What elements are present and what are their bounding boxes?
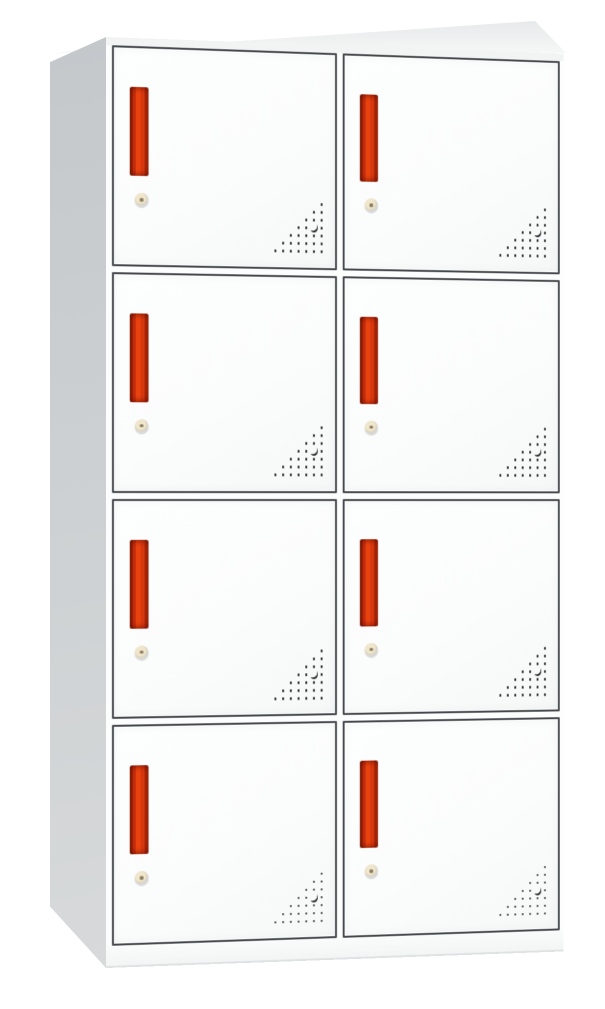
vent-hole (521, 451, 524, 454)
vent-holes (497, 644, 549, 699)
vent-hole (507, 254, 510, 257)
vent-holes (497, 205, 549, 260)
vent-hole (320, 657, 323, 660)
vent-hole (297, 689, 300, 692)
vent-hole (297, 681, 300, 684)
vent-hole (297, 920, 300, 923)
vent-hole (536, 466, 539, 469)
vent-hole (544, 904, 547, 907)
vent-hole (313, 681, 316, 684)
vent-hole (536, 897, 539, 900)
vent-hole (282, 689, 285, 692)
vent-hole-large (310, 224, 318, 233)
vent-hole (297, 458, 300, 461)
keyhole-lock-icon (365, 642, 378, 656)
vent-hole (544, 873, 547, 876)
vent-hole (521, 255, 524, 258)
vent-hole (282, 697, 285, 700)
locker-door-r1-c2 (343, 53, 560, 274)
vent-hole (529, 255, 532, 258)
vent-hole (313, 888, 316, 891)
vent-hole (521, 670, 524, 673)
vent-hole (529, 913, 532, 916)
vent-hole (297, 234, 300, 237)
vent-hole (514, 898, 517, 901)
vent-hole (544, 247, 547, 250)
vent-hole (282, 473, 285, 476)
vent-hole (514, 905, 517, 908)
vent-hole (514, 686, 517, 689)
vent-hole (320, 872, 323, 875)
vent-hole (320, 649, 323, 652)
vent-hole-large (534, 229, 541, 238)
vent-hole (529, 459, 532, 462)
vent-hole (529, 905, 532, 908)
vent-holes (497, 863, 549, 919)
vent-hole (297, 450, 300, 453)
vent-hole (521, 890, 524, 893)
vent-hole (544, 428, 547, 431)
keyhole-lock-icon (365, 198, 378, 212)
locker-door-r1-c1 (112, 45, 337, 270)
vent-hole (544, 435, 547, 438)
vent-hole (544, 693, 547, 696)
vent-hole (536, 443, 539, 446)
vent-hole (282, 466, 285, 469)
vent-hole (529, 882, 532, 885)
locker-door-r3-c2 (343, 499, 560, 716)
vent-hole (507, 474, 510, 477)
vent-hole (320, 904, 323, 907)
vent-hole (320, 697, 323, 700)
vent-hole (320, 442, 323, 445)
vent-hole (544, 678, 547, 681)
vent-hole (320, 919, 323, 922)
vent-hole (514, 254, 517, 257)
vent-hole (313, 912, 316, 915)
door-handle-recess (130, 87, 149, 176)
vent-hole (544, 670, 547, 673)
vent-hole (529, 239, 532, 242)
vent-hole (297, 227, 300, 230)
vent-hole-large (310, 670, 318, 679)
vent-hole (305, 250, 308, 253)
vent-hole (521, 913, 524, 916)
vent-hole (521, 466, 524, 469)
vent-hole (514, 239, 517, 242)
door-handle-recess (360, 539, 378, 626)
keyhole-lock-icon (365, 864, 378, 878)
vent-hole (514, 913, 517, 916)
vent-hole (305, 912, 308, 915)
vent-hole (536, 255, 539, 258)
vent-hole (282, 913, 285, 916)
vent-hole (544, 232, 547, 235)
vent-hole (521, 239, 524, 242)
vent-hole (536, 435, 539, 438)
vent-hole (320, 211, 323, 214)
vent-hole (313, 458, 316, 461)
vent-hole (529, 670, 532, 673)
vent-hole (320, 243, 323, 246)
vent-hole (274, 697, 277, 700)
vent-hole (529, 232, 532, 235)
vent-hole (313, 250, 316, 253)
vent-hole (544, 474, 547, 477)
vent-hole (507, 694, 510, 697)
vent-hole (297, 474, 300, 477)
locker-door-r4-c2 (343, 717, 560, 937)
vent-hole (320, 235, 323, 238)
vent-hole (305, 219, 308, 222)
vent-holes (272, 647, 326, 703)
vent-hole (544, 647, 547, 650)
vent-hole (507, 906, 510, 909)
vent-hole (313, 697, 316, 700)
vent-hole (536, 693, 539, 696)
vent-hole (313, 689, 316, 692)
vent-hole (305, 227, 308, 230)
vent-hole (305, 896, 308, 899)
vent-hole (544, 654, 547, 657)
vent-hole (529, 466, 532, 469)
vent-hole (320, 673, 323, 676)
vent-hole (289, 689, 292, 692)
vent-hole (313, 434, 316, 437)
vent-hole-large (310, 893, 318, 902)
vent-hole (320, 880, 323, 883)
vent-hole (521, 474, 524, 477)
vent-hole (305, 458, 308, 461)
vent-hole (297, 466, 300, 469)
vent-hole (289, 466, 292, 469)
vent-hole (507, 686, 510, 689)
vent-hole (544, 889, 547, 892)
vent-hole (320, 434, 323, 437)
cabinet-side-panel (50, 37, 106, 968)
vent-hole (305, 673, 308, 676)
vent-hole (536, 474, 539, 477)
locker-door-r3-c1 (112, 499, 337, 720)
vent-hole (289, 250, 292, 253)
vent-hole (320, 251, 323, 254)
vent-hole (320, 888, 323, 891)
vent-hole (521, 905, 524, 908)
vent-hole (305, 442, 308, 445)
vent-hole (313, 235, 316, 238)
vent-hole (320, 450, 323, 453)
vent-hole (282, 921, 285, 924)
vent-hole (305, 689, 308, 692)
vent-hole (536, 239, 539, 242)
vent-hole (297, 897, 300, 900)
vent-hole (313, 904, 316, 907)
vent-hole (521, 459, 524, 462)
vent-hole (320, 458, 323, 461)
vent-hole (282, 242, 285, 245)
vent-hole (320, 665, 323, 668)
vent-hole (536, 662, 539, 665)
vent-hole (305, 474, 308, 477)
vent-hole (289, 681, 292, 684)
vent-hole (529, 451, 532, 454)
cabinet-front-face (106, 37, 563, 968)
vent-hole (529, 474, 532, 477)
vent-hole (313, 219, 316, 222)
vent-holes (497, 425, 549, 479)
vent-hole (320, 219, 323, 222)
keyhole-lock-icon (135, 871, 149, 885)
door-handle-recess (360, 761, 378, 849)
vent-hole (536, 912, 539, 915)
vent-hole (499, 694, 502, 697)
vent-hole (544, 881, 547, 884)
vent-hole (544, 866, 547, 869)
vent-hole-large (534, 448, 541, 457)
vent-hole (289, 913, 292, 916)
vent-hole (320, 466, 323, 469)
vent-hole-large (310, 447, 318, 456)
vent-hole (313, 920, 316, 923)
door-handle-recess (130, 539, 149, 628)
vent-hole (499, 474, 502, 477)
vent-hole (313, 657, 316, 660)
vent-hole (305, 466, 308, 469)
locker-door-r4-c1 (112, 721, 337, 946)
vent-holes (272, 424, 326, 479)
vent-hole (536, 874, 539, 877)
vent-hole (305, 888, 308, 891)
vent-hole (521, 231, 524, 234)
vent-hole-large (534, 886, 541, 895)
vent-hole (320, 203, 323, 206)
vent-hole (514, 466, 517, 469)
vent-hole (529, 247, 532, 250)
vent-hole (305, 242, 308, 245)
vent-hole (320, 912, 323, 915)
vent-hole (514, 247, 517, 250)
vent-hole (544, 459, 547, 462)
vent-hole (305, 450, 308, 453)
vent-hole (544, 897, 547, 900)
door-handle-recess (360, 94, 378, 182)
vent-hole (544, 451, 547, 454)
vent-hole (274, 473, 277, 476)
vent-hole (297, 242, 300, 245)
vent-hole (499, 914, 502, 917)
vent-hole (289, 697, 292, 700)
vent-hole (529, 662, 532, 665)
vent-hole (507, 913, 510, 916)
vent-hole (274, 250, 277, 253)
keyhole-lock-icon (135, 193, 149, 207)
vent-hole (521, 247, 524, 250)
vent-hole (544, 466, 547, 469)
vent-hole (544, 685, 547, 688)
vent-hole (320, 227, 323, 230)
vent-hole (289, 920, 292, 923)
vent-hole (536, 655, 539, 658)
vent-hole (297, 697, 300, 700)
vent-hole (536, 247, 539, 250)
vent-hole (536, 678, 539, 681)
locker-door-r2-c1 (112, 272, 337, 493)
locker-door-r2-c2 (343, 276, 560, 493)
vent-hole (536, 459, 539, 462)
vent-hole (305, 665, 308, 668)
keyhole-lock-icon (135, 419, 149, 433)
door-handle-recess (360, 317, 378, 404)
vent-hole (536, 881, 539, 884)
vent-hole (305, 920, 308, 923)
vent-hole (313, 665, 316, 668)
vent-hole (305, 235, 308, 238)
vent-hole (289, 905, 292, 908)
locker-cabinet-photo (0, 0, 605, 1009)
vent-hole (320, 426, 323, 429)
vent-hole (313, 211, 316, 214)
door-handle-recess (130, 313, 149, 402)
vent-hole (529, 889, 532, 892)
vent-hole (536, 685, 539, 688)
vent-hole (313, 880, 316, 883)
vent-hole (529, 693, 532, 696)
vent-hole (544, 912, 547, 915)
vent-hole (297, 250, 300, 253)
vent-hole (297, 912, 300, 915)
vent-hole (514, 474, 517, 477)
vent-hole (297, 904, 300, 907)
vent-hole (305, 904, 308, 907)
vent-hole (507, 466, 510, 469)
vent-hole (305, 697, 308, 700)
vent-hole (544, 255, 547, 258)
vent-hole (313, 442, 316, 445)
vent-hole-large (534, 667, 541, 676)
vent-hole (521, 678, 524, 681)
vent-hole (514, 459, 517, 462)
vent-hole (529, 678, 532, 681)
vent-hole (514, 678, 517, 681)
vent-hole (289, 234, 292, 237)
vent-hole (289, 458, 292, 461)
vent-hole (536, 224, 539, 227)
vent-hole (320, 896, 323, 899)
vent-hole (507, 247, 510, 250)
vent-hole (274, 921, 277, 924)
vent-hole (313, 474, 316, 477)
vent-hole (320, 689, 323, 692)
vent-hole (514, 694, 517, 697)
vent-hole (282, 250, 285, 253)
vent-holes (272, 200, 326, 256)
vent-hole (320, 681, 323, 684)
vent-hole (320, 474, 323, 477)
vent-hole (521, 897, 524, 900)
vent-hole (313, 466, 316, 469)
vent-hole (289, 242, 292, 245)
vent-hole (529, 443, 532, 446)
vent-hole (536, 905, 539, 908)
door-grid (112, 45, 560, 946)
vent-hole (289, 474, 292, 477)
vent-hole (529, 686, 532, 689)
vent-hole (544, 224, 547, 227)
vent-holes (272, 870, 326, 927)
keyhole-lock-icon (365, 420, 378, 434)
vent-hole (544, 216, 547, 219)
vent-hole (536, 216, 539, 219)
vent-hole (544, 662, 547, 665)
vent-hole (305, 681, 308, 684)
vent-hole (313, 243, 316, 246)
vent-hole (529, 897, 532, 900)
vent-hole (297, 673, 300, 676)
vent-hole (544, 240, 547, 243)
door-handle-recess (130, 765, 149, 854)
vent-hole (499, 254, 502, 257)
vent-hole (544, 443, 547, 446)
vent-hole (521, 686, 524, 689)
keyhole-lock-icon (135, 645, 149, 659)
vent-hole (544, 209, 547, 212)
vent-hole (529, 224, 532, 227)
vent-hole (521, 693, 524, 696)
